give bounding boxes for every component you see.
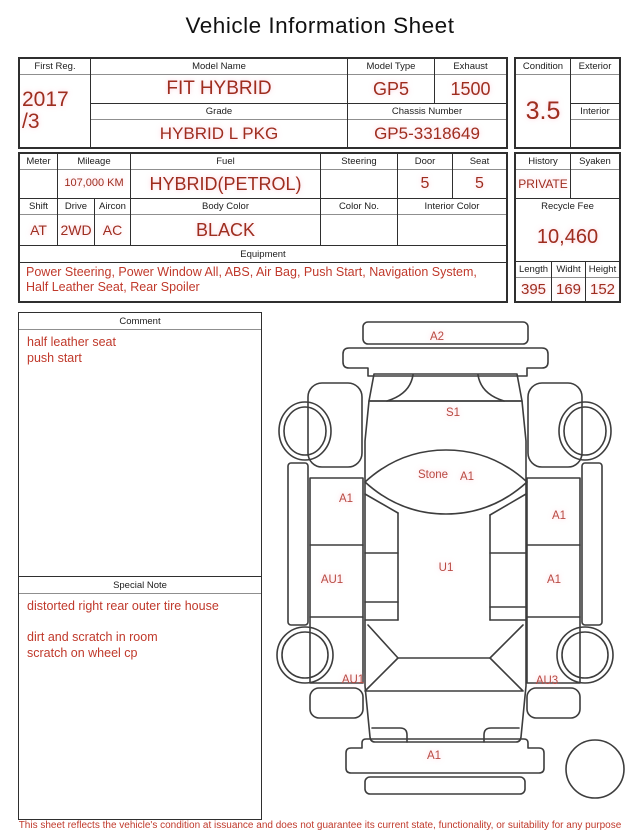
field-height: Height 152 [585,262,619,301]
shift-value: AT [20,215,57,245]
syaken-value [571,170,619,198]
first-reg-label: First Reg. [20,59,90,75]
height-label: Height [586,262,619,278]
history-value: PRIVATE [516,170,570,198]
interior-color-value [398,215,506,245]
glass-shape [365,450,527,514]
comment-text: half leather seat push start [19,330,261,576]
hatch-arc-left [387,375,413,401]
field-color-no: Color No. [320,198,397,245]
damage-label-floor: U1 [439,562,454,574]
chassis-number-label: Chassis Number [348,104,506,120]
left-front-fender-shape [308,383,362,467]
aircon-value: AC [95,215,130,245]
wheel-front-right-rim [564,407,606,455]
rear-panel-shape [343,348,548,376]
recycle-fee-label: Recycle Fee [516,199,619,214]
seat-value: 5 [453,170,506,198]
wheel-rear-right-rim [562,632,608,678]
width-value: 169 [552,278,585,301]
field-drive: Drive 2WD [57,198,94,245]
history-fee-table: History PRIVATE Syaken Recycle Fee 10,46… [514,152,621,303]
field-seat: Seat 5 [452,154,506,198]
headlight-lines [372,728,519,742]
steering-value [321,170,397,198]
field-length: Length 395 [516,262,551,301]
damage-label-roof: S1 [446,407,460,419]
mileage-label: Mileage [58,154,130,170]
meter-label: Meter [20,154,57,170]
length-value: 395 [516,278,551,301]
comment-box: Comment half leather seat push start Spe… [18,312,262,820]
first-reg-value: 2017 /3 [20,75,90,147]
interior-value [571,120,619,147]
field-fuel: Fuel HYBRID(PETROL) [130,154,320,198]
hatch-shape [369,374,522,401]
steering-label: Steering [321,154,397,170]
damage-label-left-rear-quarter: AU1 [342,674,364,686]
mileage-value: 107,000 KM [58,170,130,198]
field-door: Door 5 [397,154,452,198]
right-front-fender-shape [528,383,582,467]
windshield-shape [365,658,523,691]
front-bumper-shape [346,739,544,773]
field-interior: Interior [570,103,619,147]
history-label: History [516,154,570,170]
model-type-value: GP5 [348,75,434,103]
spec-table: Meter Mileage 107,000 KM Fuel HYBRID(PET… [18,152,508,303]
width-label: Widht [552,262,585,278]
wheel-rear-left-icon [277,627,333,683]
model-name-value: FIT HYBRID [91,75,347,103]
damage-label-left-rear-door: AU1 [321,574,343,586]
height-value: 152 [586,278,619,301]
field-mileage: Mileage 107,000 KM [57,154,130,198]
field-shift: Shift AT [20,198,57,245]
spare-tire-icon [566,740,624,798]
field-first-reg: First Reg. 2017 /3 [20,59,90,147]
field-history: History PRIVATE [516,154,570,198]
dimensions-row: Length 395 Widht 169 Height 152 [516,261,619,301]
hatch-arc-right [478,375,504,401]
wheel-rear-right-icon [557,627,613,683]
car-outline [277,322,624,798]
front-lower-bar-shape [365,777,525,794]
damage-label-right-rear-door: A1 [547,574,561,586]
field-grade: Grade HYBRID L PKG [90,103,347,147]
exterior-label: Exterior [571,59,619,75]
field-model-name: Model Name FIT HYBRID [90,59,347,103]
equipment-label: Equipment [20,245,506,263]
fuel-label: Fuel [131,154,320,170]
interior-color-label: Interior Color [398,199,506,215]
seat-label: Seat [453,154,506,170]
body-color-value: BLACK [131,215,320,245]
condition-table: Condition 3.5 Exterior Interior [514,57,621,149]
history-row: History PRIVATE Syaken [516,154,619,198]
left-sill-shape [288,463,308,625]
special-note-label: Special Note [19,576,261,594]
condition-value: 3.5 [516,75,570,147]
condition-label: Condition [516,59,570,75]
shift-label: Shift [20,199,57,215]
wheel-front-right-icon [559,402,611,460]
grade-value: HYBRID L PKG [91,120,347,147]
field-body-color: Body Color BLACK [130,198,320,245]
door-value: 5 [398,170,452,198]
body-color-label: Body Color [131,199,320,215]
field-width: Widht 169 [551,262,585,301]
color-no-label: Color No. [321,199,397,215]
model-type-label: Model Type [348,59,434,75]
field-meter: Meter [20,154,57,198]
field-recycle-fee: Recycle Fee 10,460 [516,198,619,261]
wheel-rear-left-rim [282,632,328,678]
damage-label-rear-spoiler: A2 [430,331,444,343]
door-label: Door [398,154,452,170]
rear-spoiler-shape [363,322,528,344]
chassis-number-value: GP5-3318649 [348,120,506,147]
damage-label-left-front-door: A1 [339,493,353,505]
footer-disclaimer: This sheet reflects the vehicle's condit… [0,820,640,831]
exhaust-label: Exhaust [435,59,506,75]
damage-label-right-rear-quarter: AU3 [536,675,558,687]
grade-label: Grade [91,104,347,120]
meter-value [20,170,57,198]
drive-label: Drive [58,199,94,215]
damage-label-front-bumper: A1 [427,750,441,762]
field-chassis-number: Chassis Number GP5-3318649 [347,103,506,147]
right-sill-shape [582,463,602,625]
damage-label-stone: Stone [418,469,448,481]
field-interior-color: Interior Color [397,198,506,245]
length-label: Length [516,262,551,278]
vehicle-information-sheet: Vehicle Information Sheet First Reg. 201… [0,0,640,835]
model-name-label: Model Name [91,59,347,75]
drive-value: 2WD [58,215,94,245]
special-note-text: distorted right rear outer tire house di… [19,594,261,819]
field-aircon: Aircon AC [94,198,130,245]
exhaust-value: 1500 [435,75,506,103]
field-exhaust: Exhaust 1500 [434,59,506,103]
field-steering: Steering [320,154,397,198]
damage-labels: A2 S1 Stone A1 A1 A1 AU1 A1 U1 AU1 AU3 A… [321,331,566,762]
field-syaken: Syaken [570,154,619,198]
windshield-pillar-lines [368,625,523,658]
aircon-label: Aircon [95,199,130,215]
field-condition: Condition 3.5 [516,59,570,147]
damage-label-right-front-door: A1 [552,510,566,522]
wheel-front-left-rim [284,407,326,455]
recycle-fee-value: 10,460 [516,214,619,261]
left-corner-shape [310,688,363,718]
equipment-value: Power Steering, Power Window All, ABS, A… [20,263,506,301]
field-exterior: Exterior [570,59,619,103]
syaken-label: Syaken [571,154,619,170]
comment-label: Comment [19,313,261,330]
interior-label: Interior [571,104,619,120]
damage-label-glass: A1 [460,471,474,483]
pillar-lines [365,494,526,515]
page-title: Vehicle Information Sheet [0,13,640,39]
field-model-type: Model Type GP5 [347,59,434,103]
color-no-value [321,215,397,245]
fuel-value: HYBRID(PETROL) [131,170,320,198]
wheel-front-left-icon [279,402,331,460]
right-corner-shape [527,688,580,718]
car-diagram: A2 S1 Stone A1 A1 A1 AU1 A1 U1 AU1 AU3 A… [270,310,638,815]
model-table: First Reg. 2017 /3 Model Name FIT HYBRID… [18,57,508,149]
exterior-value [571,75,619,103]
